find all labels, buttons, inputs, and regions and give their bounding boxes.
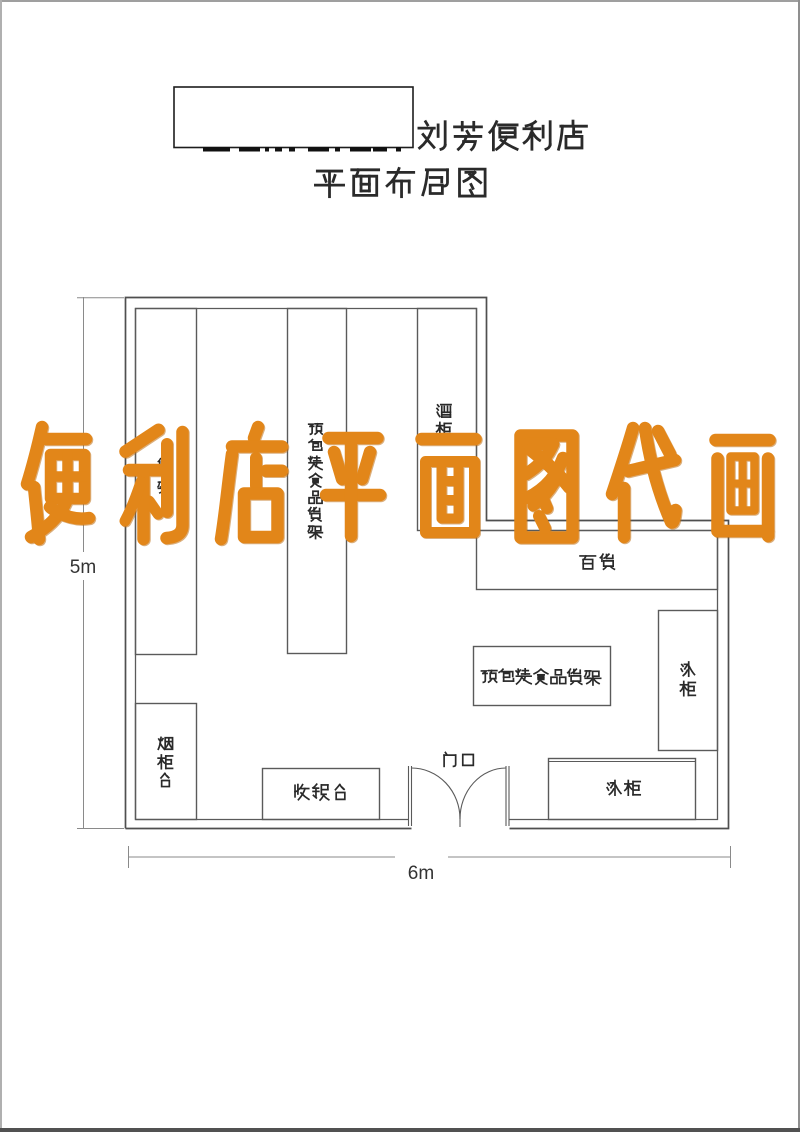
svg-text:5m: 5m [70,557,96,578]
svg-text:6m: 6m [408,863,434,884]
